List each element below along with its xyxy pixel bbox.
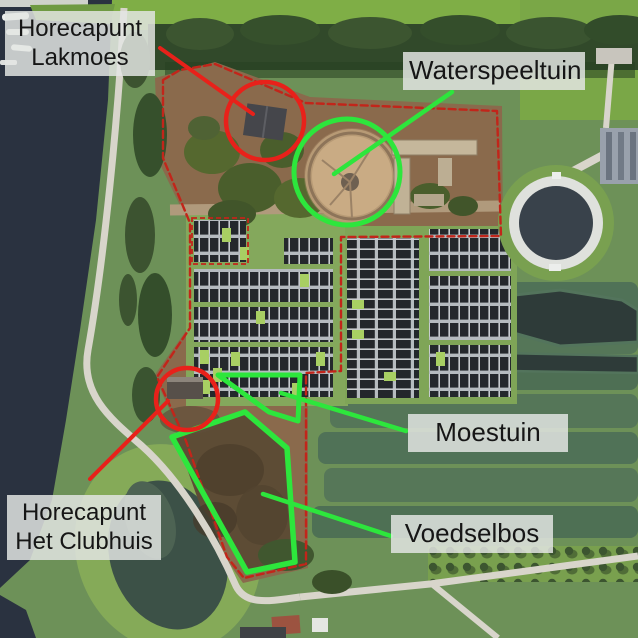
label-moestuin: Moestuin xyxy=(408,414,568,452)
label-voedselbos: Voedselbos xyxy=(391,515,553,553)
right-ponds xyxy=(497,290,638,373)
clarifier-tank xyxy=(498,165,614,281)
label-line: Waterspeeltuin xyxy=(409,55,579,87)
lakmoes-building xyxy=(243,103,287,140)
annotated-aerial-map: Horecapunt Lakmoes Waterspeeltuin Moestu… xyxy=(0,0,638,638)
pump-station-building xyxy=(600,128,638,184)
label-waterspeeltuin: Waterspeeltuin xyxy=(403,52,585,90)
label-line: Moestuin xyxy=(414,417,562,449)
label-line: Voedselbos xyxy=(397,518,547,550)
label-horecapunt-lakmoes: Horecapunt Lakmoes xyxy=(5,11,155,76)
label-line: Lakmoes xyxy=(11,43,149,72)
label-line: Horecapunt xyxy=(11,14,149,43)
filter-beds xyxy=(192,218,511,398)
label-line: Het Clubhuis xyxy=(13,527,155,556)
label-horecapunt-clubhuis: Horecapunt Het Clubhuis xyxy=(7,495,161,560)
parking-area xyxy=(596,48,632,64)
label-line: Horecapunt xyxy=(13,498,155,527)
